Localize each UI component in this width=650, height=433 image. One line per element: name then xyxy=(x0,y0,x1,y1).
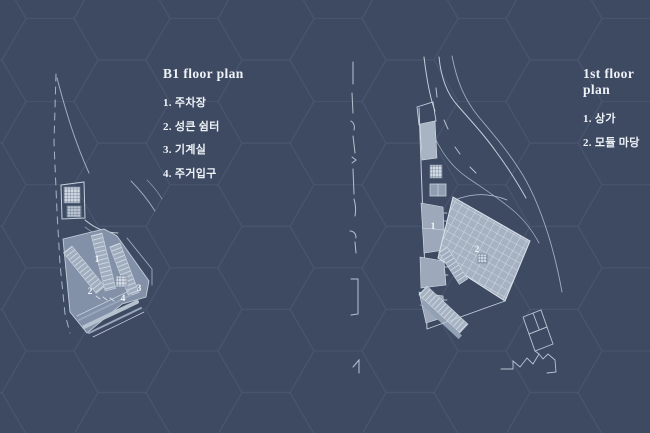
plan-area-label: 2 xyxy=(475,245,480,255)
f1-legend-item: 2. 모듈 마당 xyxy=(583,138,650,149)
f1-stair-box xyxy=(430,184,446,196)
hex-background xyxy=(0,0,650,433)
first-floor-plan-legend: 1st floor plan 1. 상가 2. 모듈 마당 xyxy=(583,66,650,161)
b1-legend-item: 2. 성큰 쉼터 xyxy=(163,122,283,133)
plan-area-label: 1 xyxy=(95,255,100,265)
b1-core-square xyxy=(116,276,127,287)
plan-area-label: 4 xyxy=(121,294,126,304)
b1-legend-item: 4. 주거입구 xyxy=(163,169,283,180)
b1-legend-item: 1. 주차장 xyxy=(163,98,283,109)
f1-shop-room xyxy=(420,257,446,288)
b1-legend-item: 3. 기계실 xyxy=(163,145,283,156)
f1-legend-item: 1. 상가 xyxy=(583,114,650,125)
f1-shop-room xyxy=(420,121,437,160)
scene-canvas: 1 2 3 4 xyxy=(0,0,650,433)
b1-stair-core xyxy=(67,206,81,217)
b1-plan-legend: B1 floor plan 1. 주차장 2. 성큰 쉼터 3. 기계실 4. … xyxy=(163,66,283,192)
b1-plan-title: B1 floor plan xyxy=(163,66,283,82)
b1-elevator-core xyxy=(64,187,80,203)
first-floor-plan-title: 1st floor plan xyxy=(583,66,650,98)
f1-elevator-core xyxy=(430,165,442,178)
plan-area-label: 1 xyxy=(431,222,436,232)
plan-area-label: 3 xyxy=(137,284,142,294)
plan-area-label: 2 xyxy=(88,287,93,297)
